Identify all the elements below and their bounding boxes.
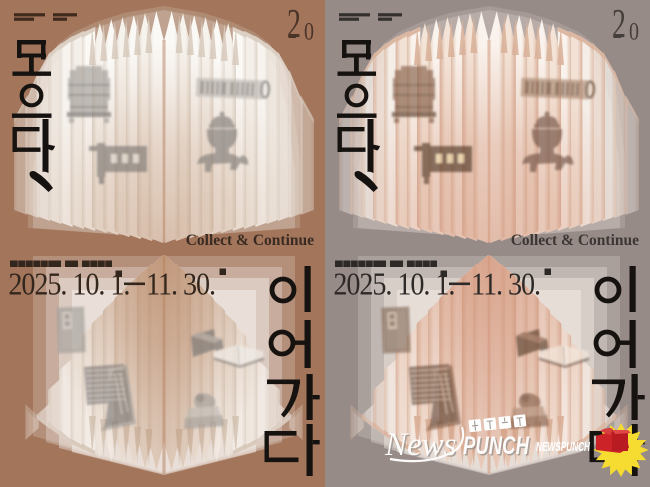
svg-text:News: News — [384, 427, 457, 463]
svg-text:2: 2 — [287, 1, 301, 47]
svg-text:2: 2 — [612, 1, 626, 47]
svg-text:Collect & Continue: Collect & Continue — [186, 232, 314, 249]
svg-text:2025. 10. 1.: 2025. 10. 1. — [8, 266, 129, 302]
svg-text:0: 0 — [304, 17, 314, 45]
svg-text:2025. 10. 1.: 2025. 10. 1. — [333, 266, 454, 302]
svg-text:11. 30.: 11. 30. — [146, 266, 215, 302]
svg-text:Collect & Continue: Collect & Continue — [511, 232, 639, 249]
svg-text:NEWSPUNCH: NEWSPUNCH — [536, 440, 591, 454]
svg-text:11. 30.: 11. 30. — [471, 266, 540, 302]
svg-text:PUNCH: PUNCH — [463, 432, 530, 460]
svg-text:0: 0 — [629, 17, 639, 45]
